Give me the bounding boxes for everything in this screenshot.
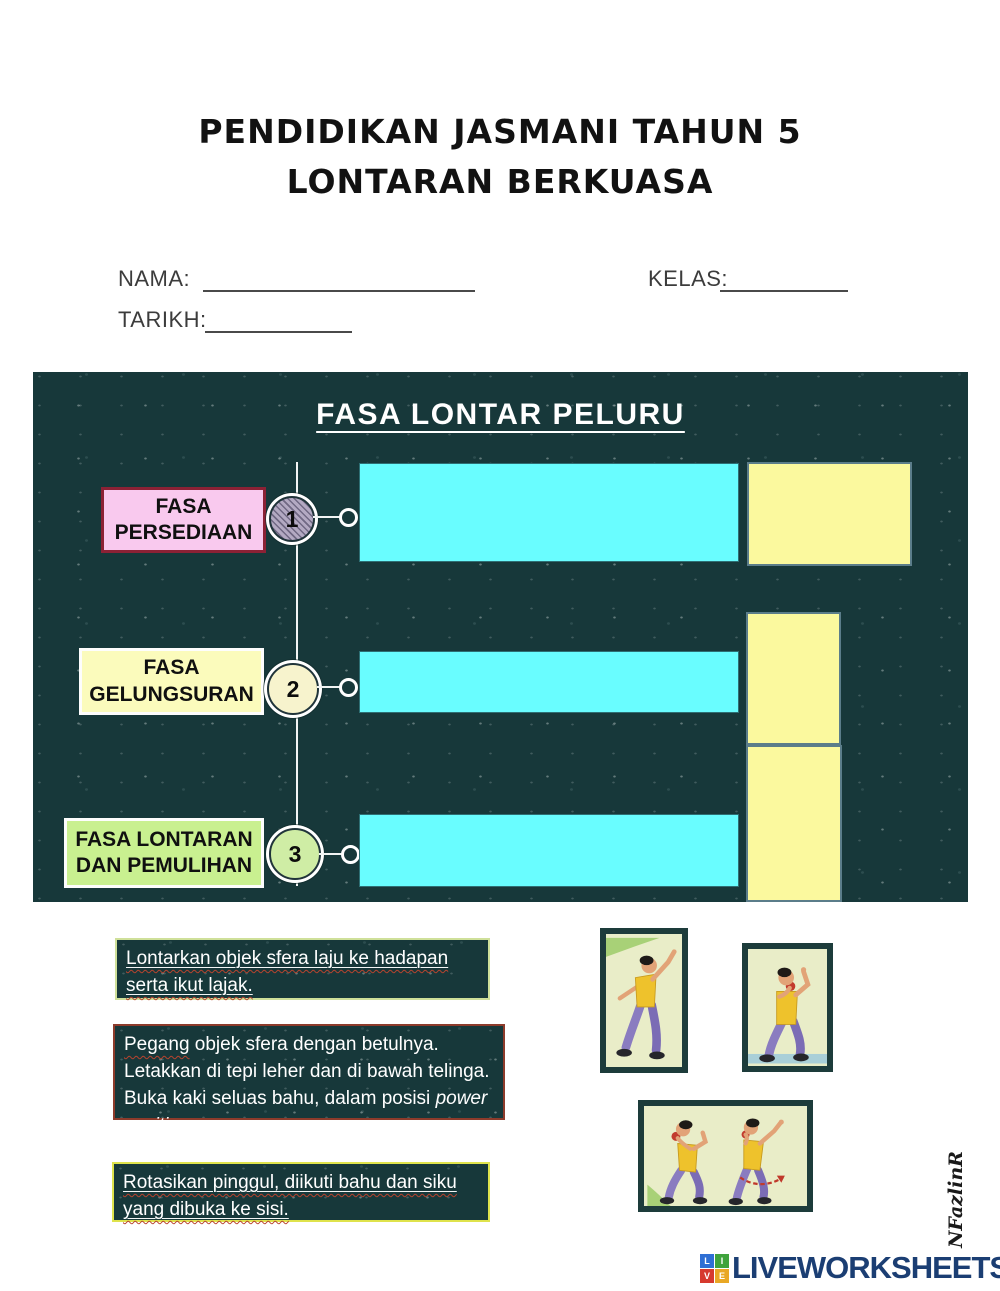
liveworksheets-logo-grid: L I V E: [700, 1254, 729, 1283]
shot-put-power-position-rotation-illustration[interactable]: [638, 1100, 813, 1212]
logo-square-v: V: [700, 1269, 714, 1283]
phase-label-line2: PERSEDIAAN: [104, 520, 263, 546]
phase-label-line2: GELUNGSURAN: [82, 682, 261, 708]
author-signature: NFazlinR: [938, 1140, 974, 1260]
connector-pin-3: [341, 845, 360, 864]
fasa-lontar-peluru-panel: FASA LONTAR PELURU FASA PERSEDIAAN 1 FAS…: [33, 372, 970, 902]
step-circle-2: 2: [267, 663, 319, 715]
phase-label-line1: FASA LONTARAN: [67, 827, 261, 853]
answer-card-lead-word: Pegang: [124, 1034, 190, 1055]
page-title-line2: LONTARAN BERKUASA: [0, 162, 1000, 201]
panel-title: FASA LONTAR PELURU: [33, 398, 968, 432]
answer-box-cyan-2[interactable]: [359, 651, 739, 713]
kelas-label: KELAS:: [648, 266, 728, 292]
logo-square-e: E: [715, 1269, 729, 1283]
answer-card-text: Lontarkan objek sfera laju ke hadapan se…: [126, 948, 448, 996]
phase-label-lontaran-pemulihan: FASA LONTARAN DAN PEMULIHAN: [64, 818, 264, 888]
kelas-blank-line[interactable]: [720, 266, 848, 292]
answer-card-pegang[interactable]: Pegang objek sfera dengan betulnya. Leta…: [113, 1024, 505, 1120]
connector-line-1: [313, 516, 341, 518]
nama-blank-line[interactable]: [203, 266, 475, 292]
answer-card-text: Rotasikan pinggul, diikuti bahu dan siku…: [123, 1172, 457, 1220]
phase-label-line1: FASA: [82, 655, 261, 681]
shot-put-hold-at-neck-illustration[interactable]: [742, 943, 833, 1072]
step-circle-3: 3: [269, 828, 321, 880]
nama-label: NAMA:: [118, 266, 190, 292]
step-circle-1: 1: [269, 496, 315, 542]
connector-pin-2: [339, 678, 358, 697]
answer-box-cyan-1[interactable]: [359, 463, 739, 562]
follow-through-figure: [606, 934, 682, 1067]
connector-pin-1: [339, 508, 358, 527]
step-number-1: 1: [286, 506, 299, 533]
answer-box-yellow-3[interactable]: [746, 745, 842, 902]
connector-line-2: [317, 686, 341, 688]
phase-label-persediaan: FASA PERSEDIAAN: [101, 487, 266, 553]
tarikh-label: TARIKH:: [118, 307, 207, 333]
tarikh-blank-line[interactable]: [205, 307, 352, 333]
page-title-line1: PENDIDIKAN JASMANI TAHUN 5: [0, 112, 1000, 151]
logo-square-i: I: [715, 1254, 729, 1268]
answer-box-yellow-2[interactable]: [746, 612, 841, 745]
answer-card-rotasikan[interactable]: Rotasikan pinggul, diikuti bahu dan siku…: [112, 1162, 490, 1222]
logo-square-l: L: [700, 1254, 714, 1268]
answer-box-yellow-1[interactable]: [747, 462, 912, 566]
phase-label-line1: FASA: [104, 494, 263, 520]
phase-label-line2: DAN PEMULIHAN: [67, 853, 261, 879]
connector-line-3: [319, 853, 343, 855]
shot-put-follow-through-illustration[interactable]: [600, 928, 688, 1073]
hold-at-neck-figure: [748, 949, 827, 1066]
document-title: PENDIDIKAN JASMANI TAHUN 5 LONTARAN BERK…: [0, 112, 1000, 201]
power-position-rotation-figure: [644, 1106, 807, 1206]
answer-card-lontarkan[interactable]: Lontarkan objek sfera laju ke hadapan se…: [115, 938, 490, 1000]
step-number-3: 3: [289, 841, 302, 868]
step-number-2: 2: [287, 676, 300, 703]
worksheet-page: PENDIDIKAN JASMANI TAHUN 5 LONTARAN BERK…: [0, 0, 1000, 1291]
answer-box-cyan-3[interactable]: [359, 814, 739, 887]
phase-label-gelungsuran: FASA GELUNGSURAN: [79, 648, 264, 715]
